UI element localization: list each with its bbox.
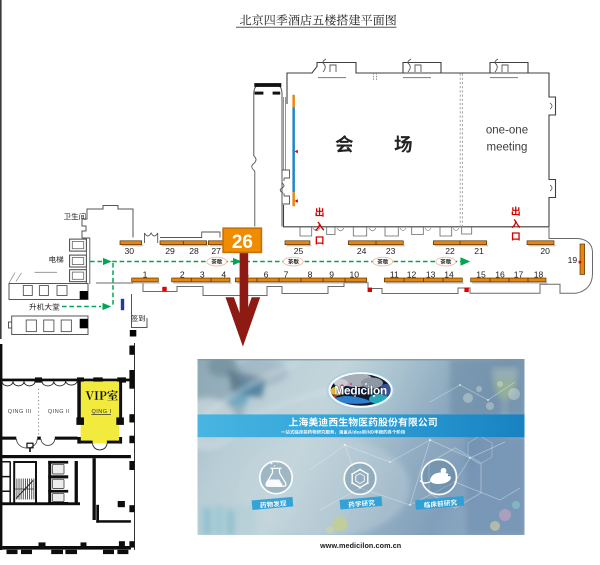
- svg-text:14: 14: [444, 270, 454, 280]
- svg-text:Medicilon: Medicilon: [334, 383, 387, 397]
- svg-text:21: 21: [474, 246, 484, 256]
- svg-text:16: 16: [495, 270, 505, 280]
- svg-text:meeting: meeting: [487, 142, 528, 154]
- svg-text:18: 18: [534, 270, 544, 280]
- svg-text:2: 2: [180, 270, 185, 280]
- svg-text:4: 4: [221, 270, 226, 280]
- svg-text:17: 17: [514, 270, 524, 280]
- svg-text:9: 9: [329, 270, 334, 280]
- svg-text:22: 22: [445, 246, 455, 256]
- svg-text:24: 24: [357, 246, 367, 256]
- svg-text:19: 19: [568, 255, 578, 265]
- svg-text:25: 25: [294, 246, 304, 256]
- svg-text:QING III: QING III: [8, 409, 32, 415]
- svg-text:1: 1: [143, 270, 148, 280]
- svg-text:QING I: QING I: [91, 409, 111, 415]
- svg-text:10: 10: [350, 270, 360, 280]
- svg-text:6: 6: [264, 270, 269, 280]
- svg-text:13: 13: [426, 270, 436, 280]
- svg-text:30: 30: [125, 246, 135, 256]
- svg-text:26: 26: [232, 232, 253, 253]
- svg-text:8: 8: [308, 270, 313, 280]
- svg-text:QING II: QING II: [48, 409, 70, 415]
- svg-text:29: 29: [165, 246, 175, 256]
- svg-text:7: 7: [284, 270, 289, 280]
- svg-text:15: 15: [476, 270, 486, 280]
- svg-text:12: 12: [407, 270, 417, 280]
- svg-text:23: 23: [386, 246, 396, 256]
- svg-text:11: 11: [390, 270, 399, 280]
- svg-text:one-one: one-one: [486, 125, 528, 137]
- svg-text:20: 20: [540, 246, 550, 256]
- svg-text:www.medicilon.com.cn: www.medicilon.com.cn: [319, 541, 401, 550]
- svg-text:28: 28: [189, 246, 199, 256]
- svg-text:27: 27: [211, 246, 221, 256]
- svg-text:3: 3: [200, 270, 205, 280]
